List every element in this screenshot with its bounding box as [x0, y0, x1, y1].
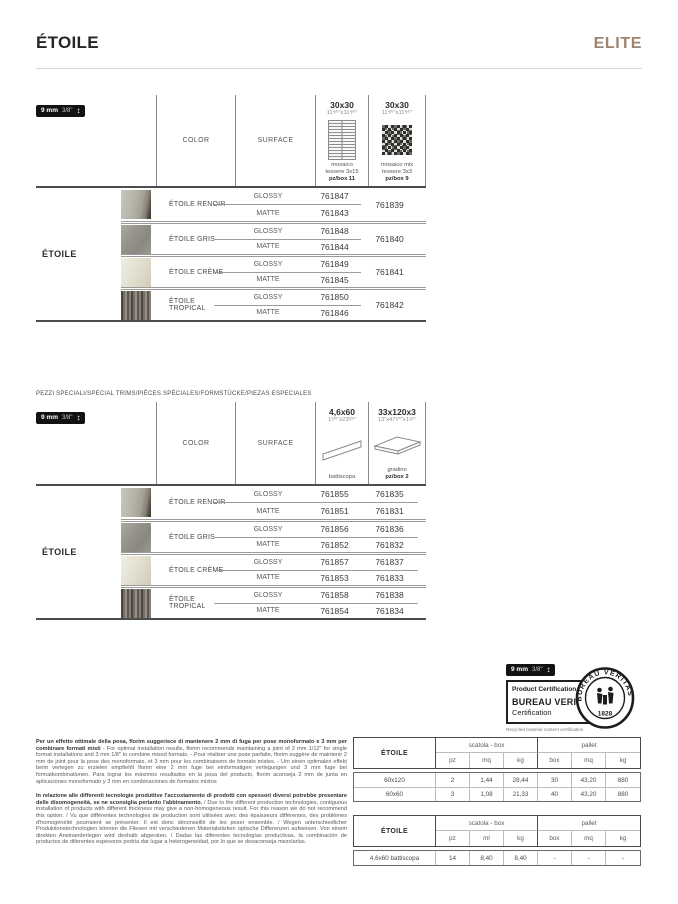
mosaic-strips-icon [328, 120, 356, 160]
format-header-battiscopa: 4,6x60 1⁴⁄⁵"x23³⁄⁵" battiscopa [316, 402, 369, 484]
packing-row: 4,6x60 battiscopa 14 8,40 8,40 - - - [354, 851, 640, 865]
packing-value: 30 [538, 773, 572, 787]
product-color-row: ÉTOILE CRÈME GLOSSY 761849 MATTE 761845 … [121, 254, 426, 287]
format-header-gradino: 33x120x3 13"x47¹⁄⁴"x1¹⁄⁵" gradino pz/box… [369, 402, 426, 484]
packing-value: 1,08 [470, 788, 504, 801]
packing-value: - [606, 851, 640, 865]
surface-label: GLOSSY [228, 193, 308, 200]
format-name: 4,6x60 battiscopa [354, 851, 436, 865]
series-label: ÉTOILE [354, 816, 436, 846]
product-code: 761847 [308, 191, 361, 201]
packing-header: ÉTOILE scatola - box pallet pz mq kg box… [353, 737, 641, 769]
thickness-arrow-icon: ↕ [76, 107, 80, 115]
product-code-mosaic-mix: 761840 [361, 234, 418, 244]
surface-column-header: SURFACE [236, 95, 316, 186]
packing-row: 60x120 2 1,44 28,44 30 43,20 880 [354, 773, 640, 787]
surface-label: GLOSSY [228, 228, 308, 235]
page-title: ÉTOILE [36, 33, 99, 53]
format-size: 30x30 [385, 101, 409, 110]
packing-table-main: ÉTOILE scatola - box pallet pz mq kg box… [353, 737, 641, 802]
series-label: ÉTOILE [36, 188, 121, 320]
series-label: ÉTOILE [36, 486, 121, 618]
surface-label: MATTE [228, 574, 308, 581]
surface-column-header: SURFACE [236, 402, 316, 484]
product-code: 761853 [308, 573, 361, 583]
surface-label: GLOSSY [228, 526, 308, 533]
packing-value: 880 [606, 788, 640, 801]
product-code: 761852 [308, 540, 361, 550]
format-inches: 11⁴⁄⁵"x11⁴⁄⁵" [327, 110, 358, 117]
product-color-row: ÉTOILE TROPICAL GLOSSY 761850 MATTE 7618… [121, 287, 426, 320]
tile-swatch [121, 589, 151, 618]
format-inches: 11⁴⁄⁵"x11⁴⁄⁵" [382, 110, 413, 117]
surface-label: MATTE [228, 276, 308, 283]
product-code: 761836 [361, 524, 418, 534]
special-trims-title: PEZZI SPECIALI/SPECIAL TRIMS/PIÈCES SPÉC… [36, 391, 312, 397]
thickness-inch: 3/8" [62, 108, 72, 114]
table-header: 9 mm 3/8" ↕ COLOR SURFACE 4,6x60 1⁴⁄⁵"x2… [36, 402, 426, 486]
tile-swatch [121, 225, 151, 254]
packing-body: 4,6x60 battiscopa 14 8,40 8,40 - - - [353, 850, 641, 866]
trim-color-row: ÉTOILE RENOIR GLOSSY 761855 761835 MATTE… [121, 486, 426, 519]
surface-label: GLOSSY [228, 261, 308, 268]
packing-value: 2 [436, 773, 470, 787]
product-code: 761832 [361, 540, 418, 550]
table-body: ÉTOILE ÉTOILE RENOIR GLOSSY 761847 MATTE… [36, 188, 426, 322]
product-code-mosaic-mix: 761839 [361, 200, 418, 210]
product-code: 761848 [308, 226, 361, 236]
packing-value: 3 [436, 788, 470, 801]
format-header-mosaico: 30x30 11⁴⁄⁵"x11⁴⁄⁵" mosaico tessere 3x15… [316, 95, 369, 186]
tile-swatch [121, 556, 151, 585]
bureau-veritas-seal-icon: BUREAU VERITAS 1828 [575, 667, 635, 729]
thickness-badge: 9 mm 3/8" ↕ [506, 664, 555, 676]
product-code: 761854 [308, 606, 361, 616]
series-label: ÉTOILE [354, 738, 436, 768]
packing-value: 14 [436, 851, 470, 865]
surface-label: MATTE [228, 541, 308, 548]
pieces-per-box: pz/box 11 [329, 176, 355, 186]
trim-color-row: ÉTOILE TROPICAL GLOSSY 761858 761838 MAT… [121, 585, 426, 618]
product-color-row: ÉTOILE GRIS GLOSSY 761848 MATTE 761844 7… [121, 221, 426, 254]
product-code: 761843 [308, 208, 361, 218]
packing-value: 8,40 [504, 851, 538, 865]
surface-label: GLOSSY [228, 559, 308, 566]
packing-value: 880 [606, 773, 640, 787]
trim-color-row: ÉTOILE GRIS GLOSSY 761856 761836 MATTE 7… [121, 519, 426, 552]
thickness-mm: 9 mm [41, 107, 58, 114]
tile-swatch [121, 190, 151, 219]
tile-swatch [121, 291, 151, 320]
surface-label: MATTE [228, 243, 308, 250]
product-code: 761857 [308, 557, 361, 567]
product-code: 761851 [308, 506, 361, 516]
color-column-header: COLOR [156, 95, 236, 186]
tile-swatch [121, 258, 151, 287]
product-code: 761845 [308, 275, 361, 285]
surface-label: MATTE [228, 210, 308, 217]
gradino-icon [371, 433, 423, 459]
brand-logo: ELITE [594, 35, 642, 53]
product-code: 761846 [308, 308, 361, 318]
product-code: 761834 [361, 606, 418, 616]
product-code: 761838 [361, 590, 418, 600]
packing-row: 60x60 3 1,08 21,33 40 43,20 880 [354, 787, 640, 801]
tile-swatch [121, 488, 151, 517]
product-code: 761844 [308, 242, 361, 252]
product-code: 761849 [308, 259, 361, 269]
format-header-mosaico-mix: 30x30 11⁴⁄⁵"x11⁴⁄⁵" mosaico mix tessere … [369, 95, 426, 186]
product-code: 761831 [361, 506, 418, 516]
product-code: 761833 [361, 573, 418, 583]
packing-header: ÉTOILE scatola - box pallet pz ml kg box… [353, 815, 641, 847]
color-column-header: COLOR [156, 402, 236, 484]
product-code: 761855 [308, 489, 361, 499]
packing-value: 40 [538, 788, 572, 801]
product-color-row: ÉTOILE RENOIR GLOSSY 761847 MATTE 761843… [121, 188, 426, 221]
surface-label: MATTE [228, 309, 308, 316]
packing-value: 43,20 [572, 788, 606, 801]
header-divider [36, 68, 642, 69]
surface-label: GLOSSY [228, 294, 308, 301]
surface-label: GLOSSY [228, 491, 308, 498]
product-code: 761835 [361, 489, 418, 499]
tile-swatch [121, 523, 151, 552]
packing-table-trims: ÉTOILE scatola - box pallet pz ml kg box… [353, 815, 641, 866]
svg-text:1828: 1828 [598, 711, 613, 718]
page-header: ÉTOILE ELITE [36, 33, 642, 53]
thickness-arrow-icon: ↕ [546, 666, 550, 674]
thickness-arrow-icon: ↕ [76, 414, 80, 422]
certification-block: 9 mm 3/8" ↕ Product Certification BUREAU… [506, 658, 642, 732]
thickness-badge: 9 mm 3/8" ↕ [36, 105, 85, 117]
pieces-per-box: pz/box 9 [385, 176, 408, 186]
table-header: 9 mm 3/8" ↕ COLOR SURFACE 30x30 11⁴⁄⁵"x1… [36, 95, 426, 188]
packing-value: 43,20 [572, 773, 606, 787]
trim-color-row: ÉTOILE CRÈME GLOSSY 761857 761837 MATTE … [121, 552, 426, 585]
main-format-table: 9 mm 3/8" ↕ COLOR SURFACE 30x30 11⁴⁄⁵"x1… [36, 95, 426, 322]
installation-note: Per un effetto ottimale della posa, flor… [36, 739, 347, 785]
product-code: 761856 [308, 524, 361, 534]
packing-value: 8,40 [470, 851, 504, 865]
packing-value: 1,44 [470, 773, 504, 787]
product-code: 761858 [308, 590, 361, 600]
format-name: 60x60 [354, 788, 436, 801]
thickness-badge: 9 mm 3/8" ↕ [36, 412, 85, 424]
surface-label: GLOSSY [228, 592, 308, 599]
surface-label: MATTE [228, 607, 308, 614]
format-name: 60x120 [354, 773, 436, 787]
packing-value: - [572, 851, 606, 865]
product-code: 761850 [308, 292, 361, 302]
packing-value: 21,33 [504, 788, 538, 801]
packing-value: 28,44 [504, 773, 538, 787]
product-code: 761837 [361, 557, 418, 567]
special-trims-table: 9 mm 3/8" ↕ COLOR SURFACE 4,6x60 1⁴⁄⁵"x2… [36, 402, 426, 620]
format-size: 30x30 [330, 101, 354, 110]
thickness-note: In relazione alle differenti tecnologie … [36, 793, 347, 846]
product-code-mosaic-mix: 761842 [361, 300, 418, 310]
packing-body: 60x120 2 1,44 28,44 30 43,20 880 60x60 3… [353, 772, 641, 802]
table-body: ÉTOILE ÉTOILE RENOIR GLOSSY 761855 76183… [36, 486, 426, 620]
battiscopa-icon [320, 436, 364, 462]
footnotes: Per un effetto ottimale della posa, flor… [36, 739, 347, 846]
product-code-mosaic-mix: 761841 [361, 267, 418, 277]
mosaic-mix-icon [382, 125, 412, 155]
packing-value: - [538, 851, 572, 865]
surface-label: MATTE [228, 508, 308, 515]
